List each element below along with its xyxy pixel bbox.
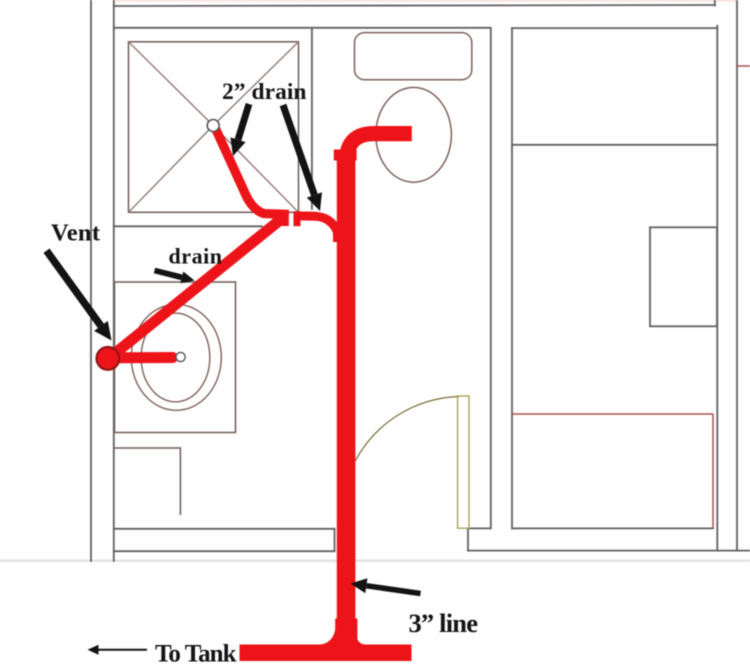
svg-text:To Tank: To Tank bbox=[155, 641, 237, 668]
svg-text:3” line: 3” line bbox=[409, 608, 479, 638]
svg-text:2” drain: 2” drain bbox=[222, 79, 307, 105]
svg-text:Vent: Vent bbox=[51, 220, 101, 247]
svg-text:drain: drain bbox=[169, 244, 223, 269]
